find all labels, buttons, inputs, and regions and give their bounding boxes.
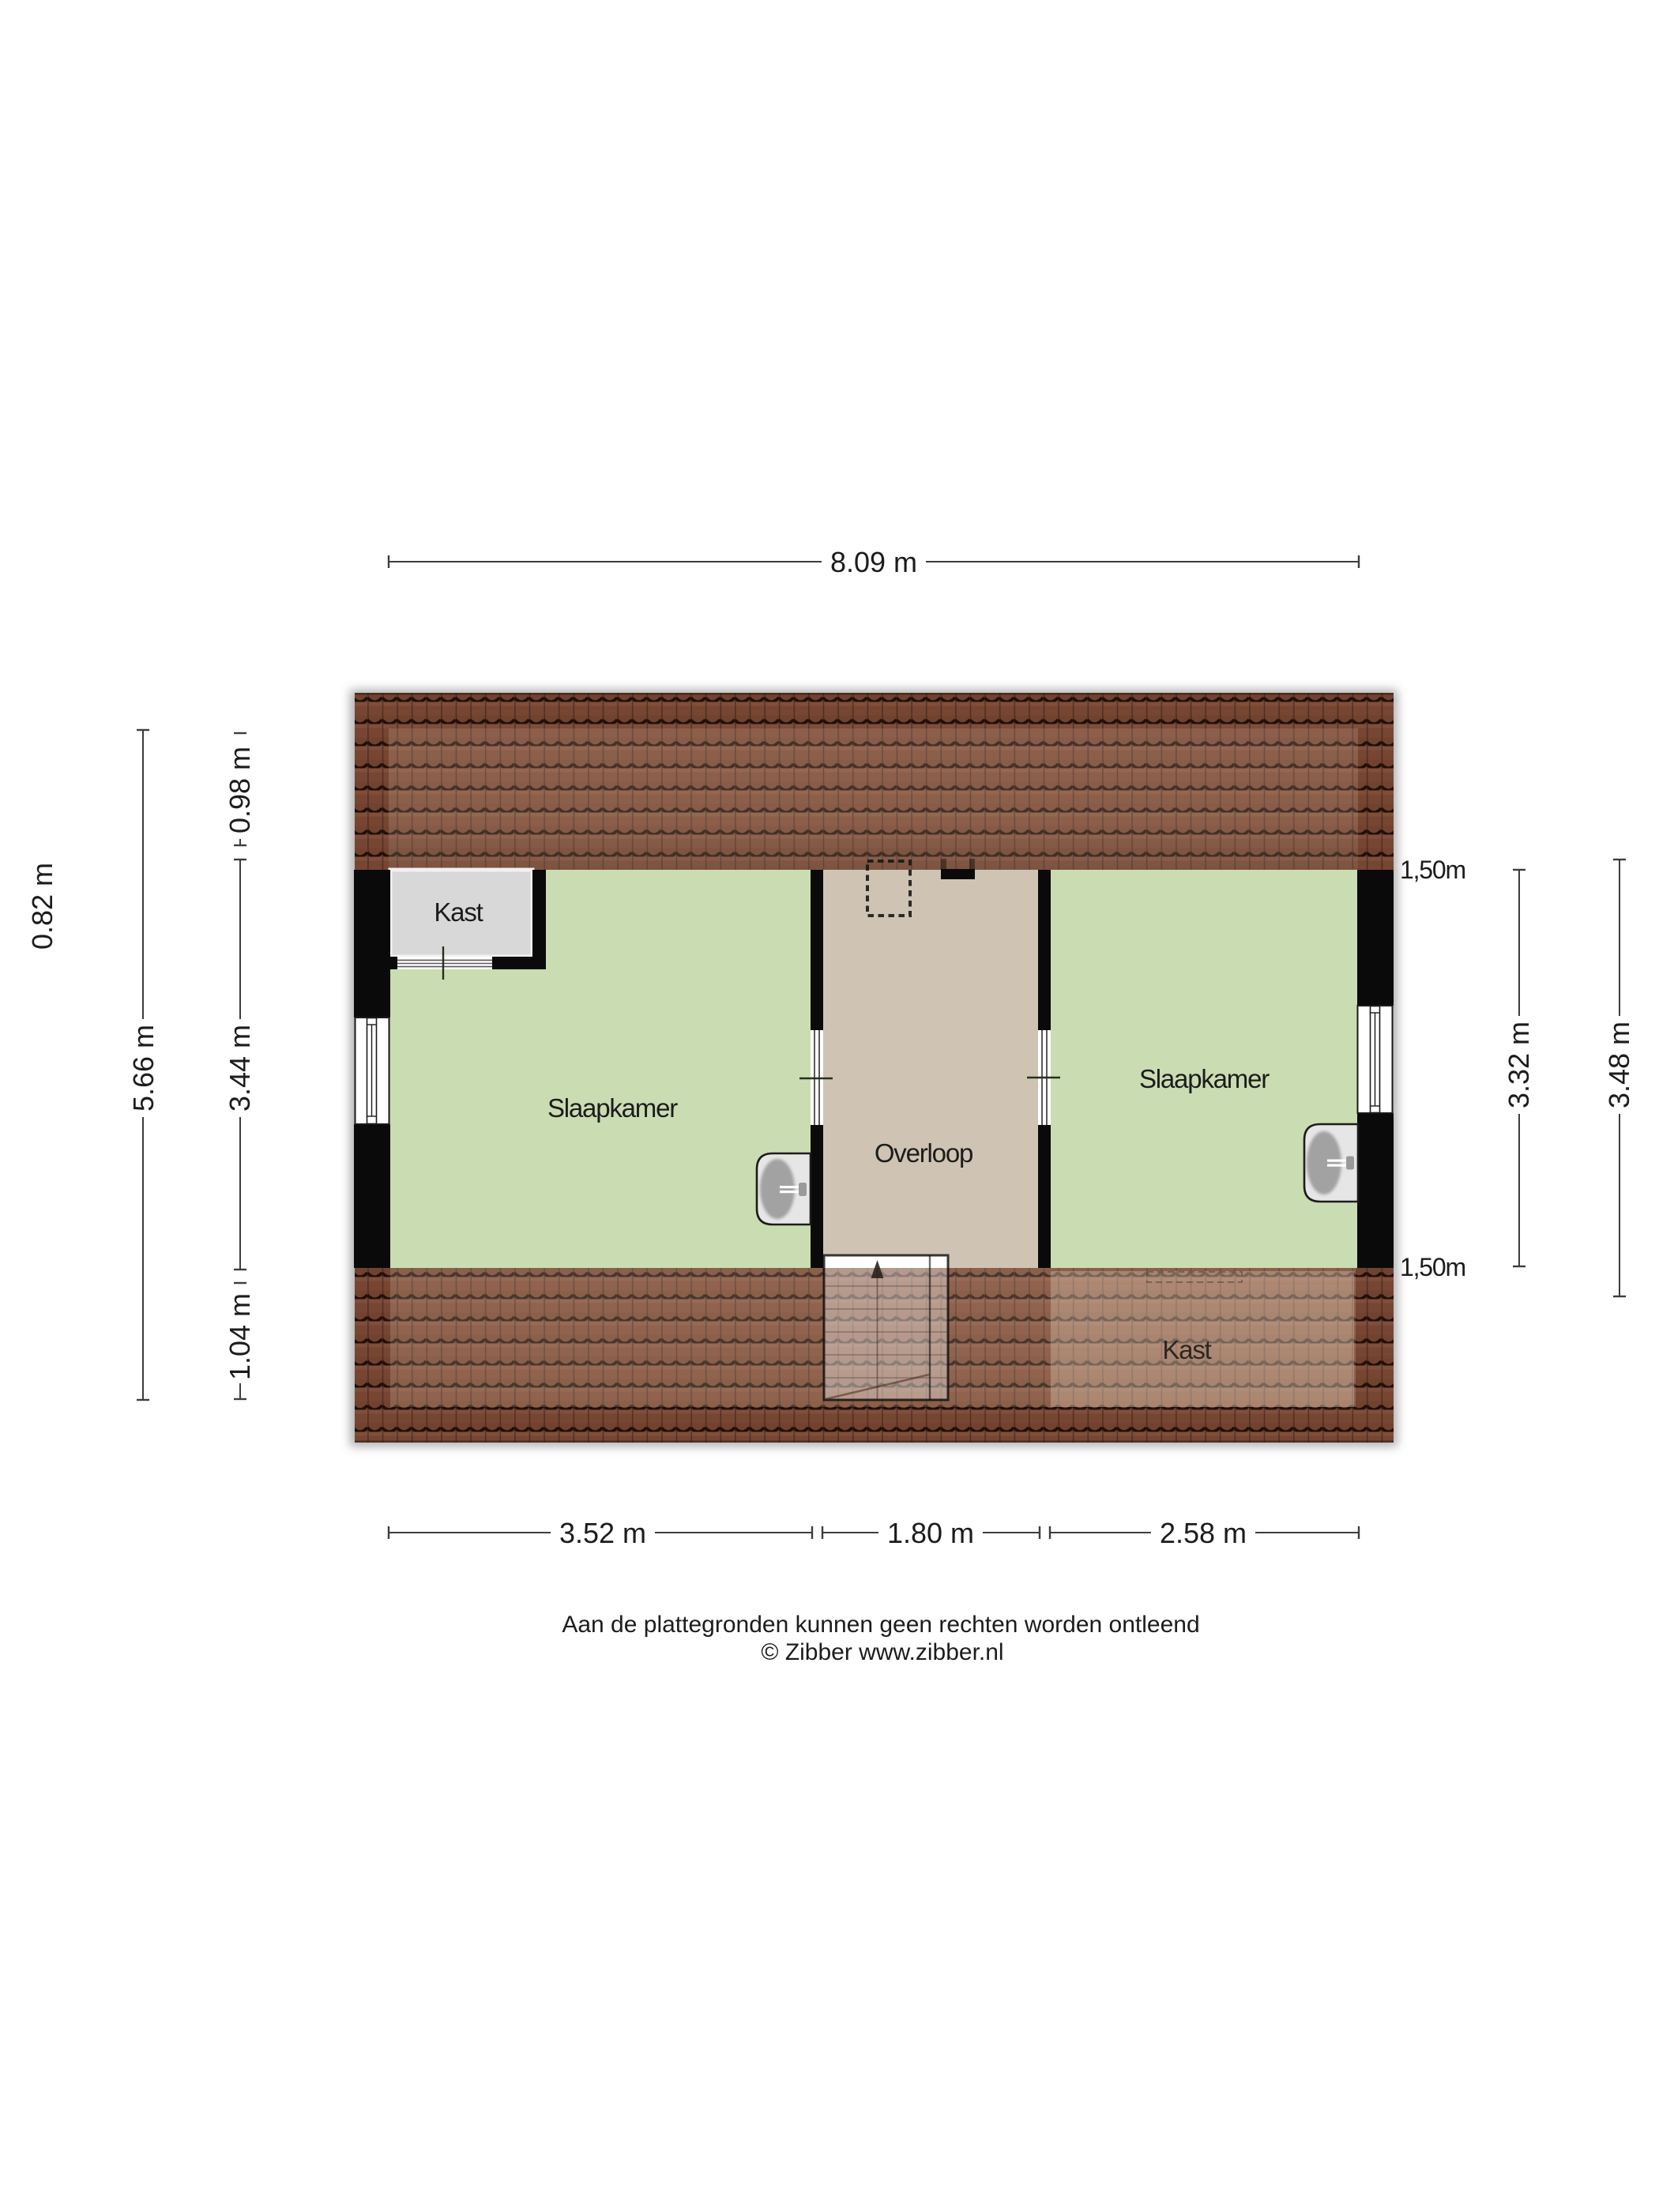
svg-text:1.04 m: 1.04 m [224, 1293, 256, 1380]
svg-text:Kast: Kast [434, 897, 483, 927]
svg-text:5.66 m: 5.66 m [127, 1025, 160, 1112]
svg-text:Slaapkamer: Slaapkamer [1139, 1064, 1270, 1093]
svg-text:1.80 m: 1.80 m [887, 1517, 974, 1549]
svg-text:3.48 m: 3.48 m [1603, 1021, 1635, 1108]
svg-text:0.82 m: 0.82 m [26, 863, 58, 950]
svg-text:Kast: Kast [1162, 1335, 1211, 1364]
svg-text:Overloop: Overloop [875, 1138, 972, 1168]
svg-text:3.52 m: 3.52 m [559, 1517, 646, 1549]
svg-text:0.98 m: 0.98 m [224, 747, 256, 833]
svg-text:8.09 m: 8.09 m [830, 546, 917, 578]
svg-text:Aan de plattegronden kunnen ge: Aan de plattegronden kunnen geen rechten… [562, 1612, 1199, 1638]
svg-text:2.58 m: 2.58 m [1160, 1517, 1247, 1549]
svg-text:1,50m: 1,50m [1400, 1253, 1465, 1281]
svg-text:Slaapkamer: Slaapkamer [547, 1093, 678, 1123]
svg-text:3.32 m: 3.32 m [1503, 1021, 1535, 1108]
svg-text:1,50m: 1,50m [1400, 856, 1465, 884]
svg-text:3.44 m: 3.44 m [224, 1025, 256, 1112]
svg-text:© Zibber www.zibber.nl: © Zibber www.zibber.nl [761, 1639, 1003, 1665]
